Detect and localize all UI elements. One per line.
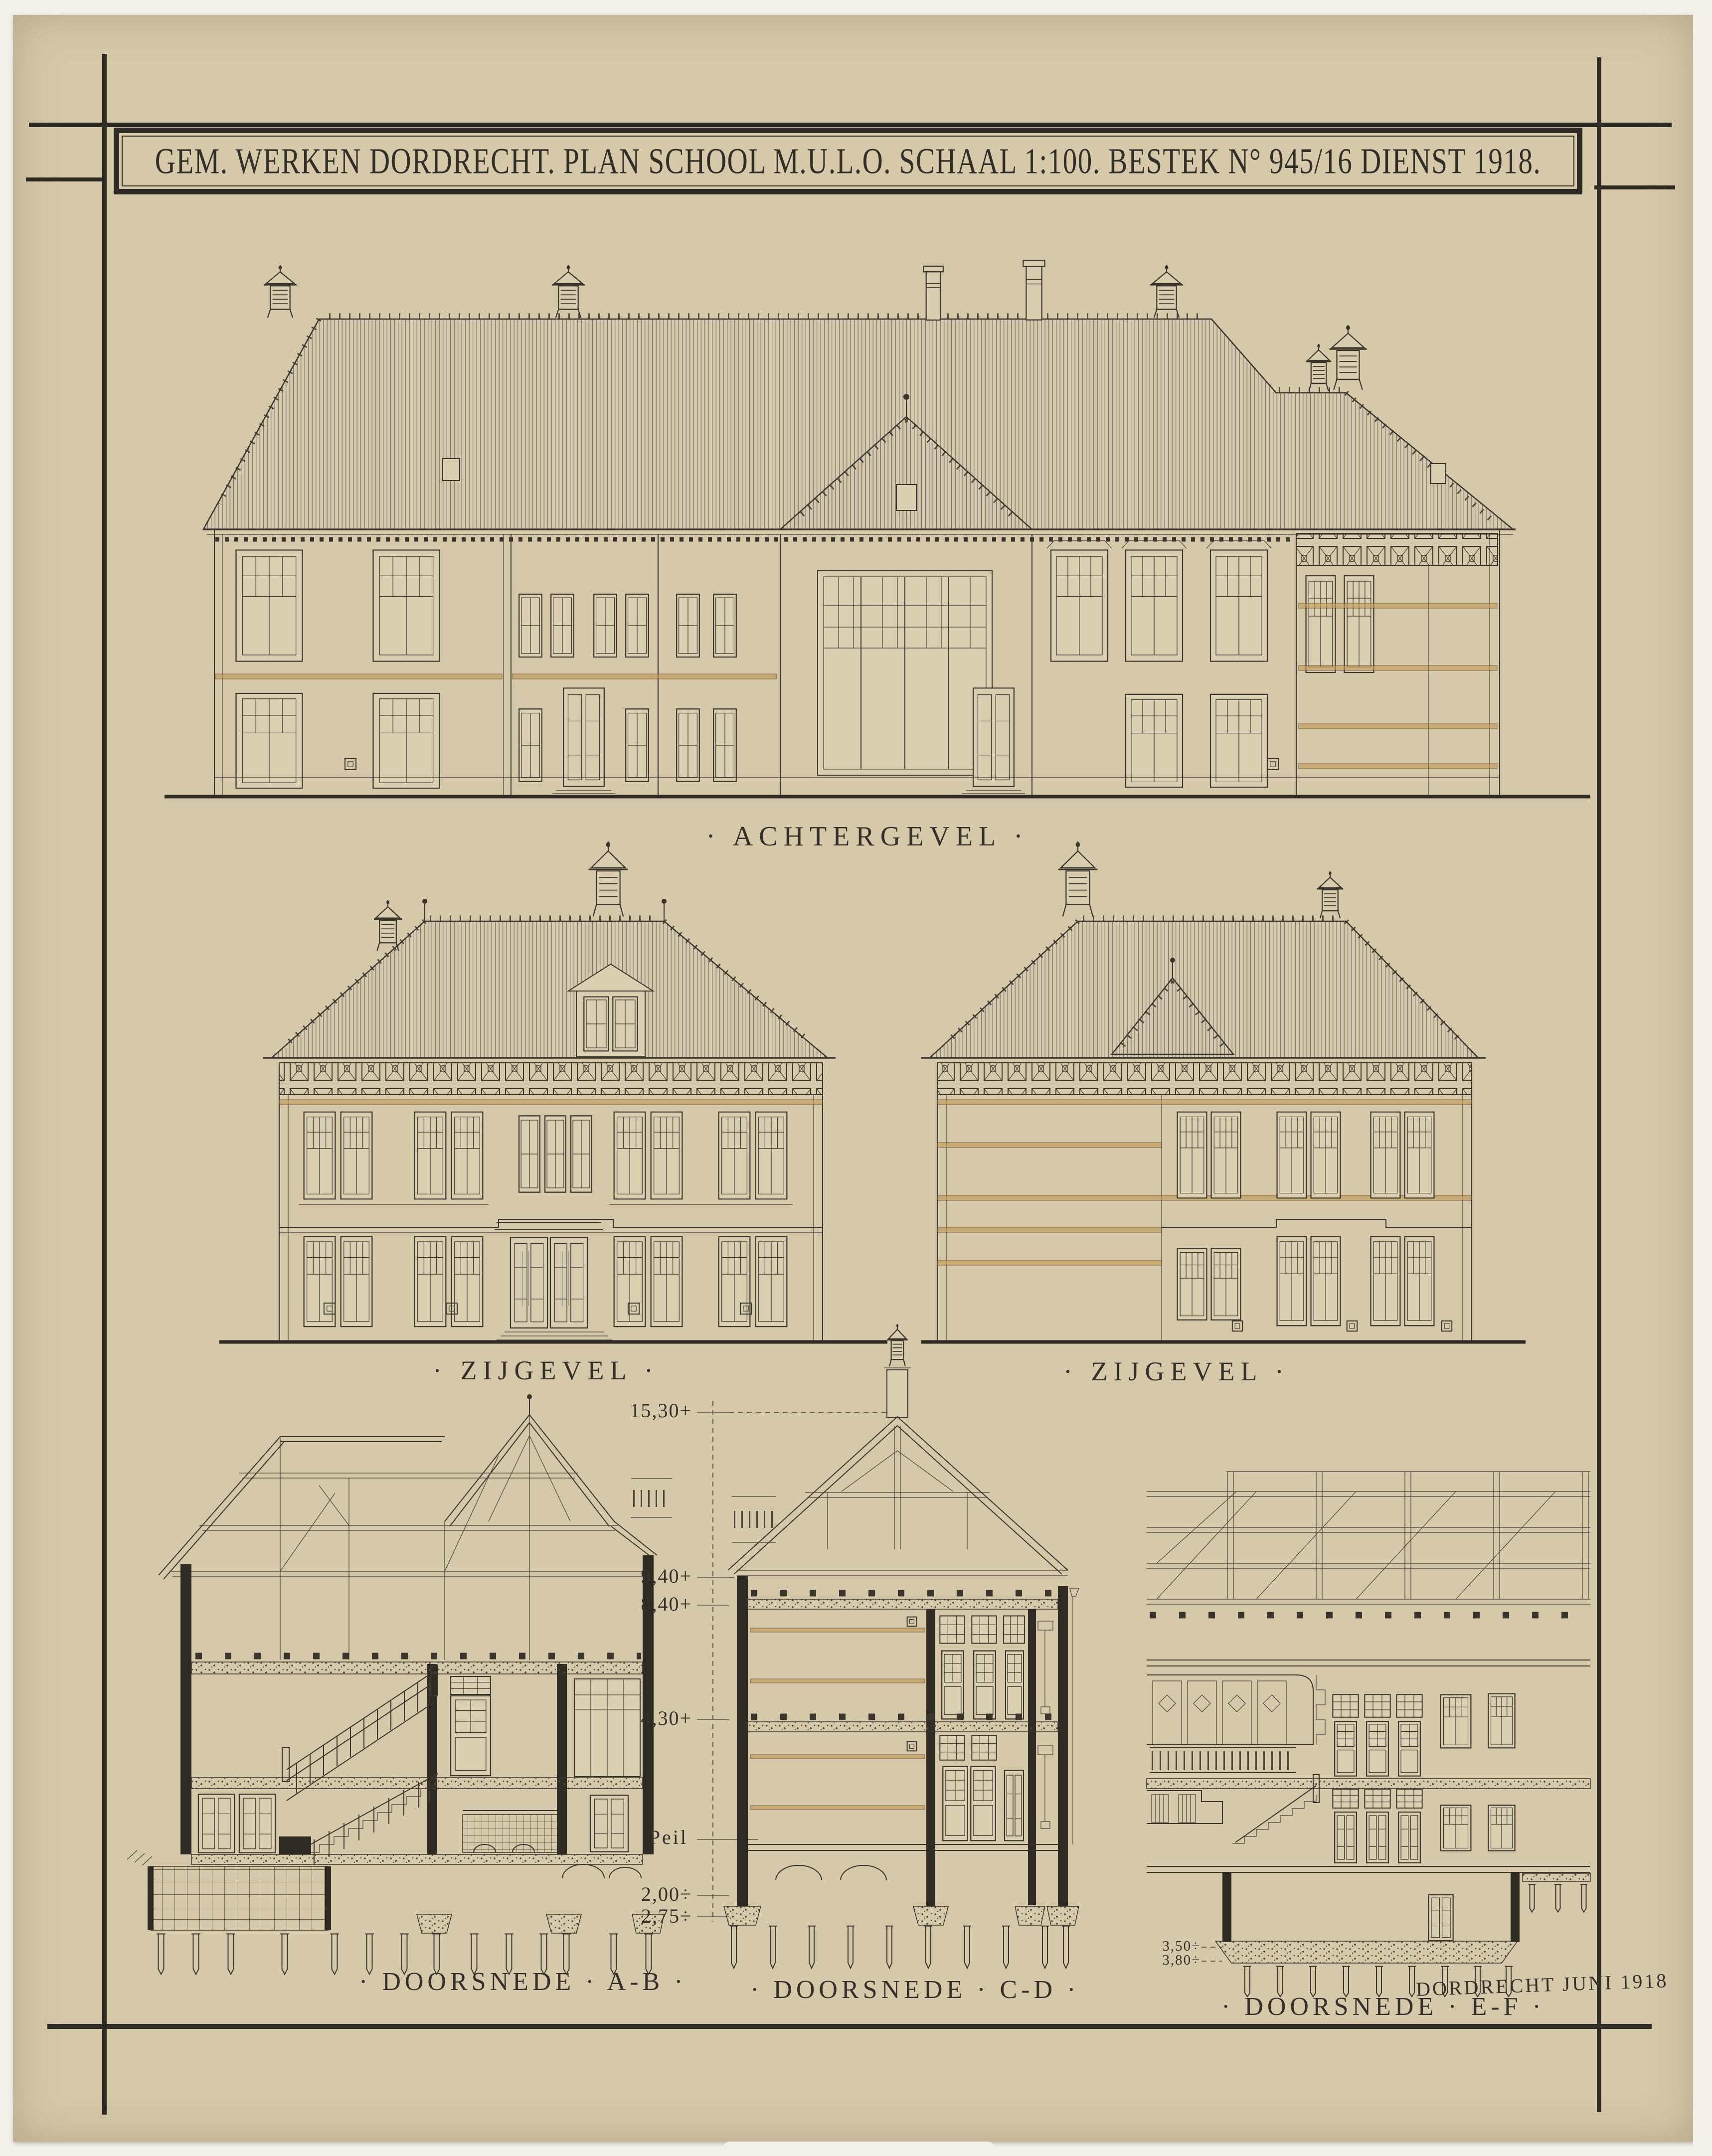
doorsnede-cd-drawing	[724, 1324, 1079, 1968]
label-doorsnede-ab: · DOORSNEDE · A-B ·	[359, 1967, 668, 1996]
label-zijgevel-right: · ZIJGEVEL ·	[1027, 1356, 1326, 1387]
dim-level-200: 2,00÷	[617, 1882, 692, 1906]
doorsnede-ab-drawing	[127, 1394, 672, 1974]
dim-level-peil: Peil	[623, 1825, 688, 1849]
label-zijgevel-left: · ZIJGEVEL ·	[396, 1355, 695, 1386]
label-achtergevel: · ACHTERGEVEL ·	[693, 821, 1042, 852]
paper-edge-bottom-notch	[723, 2142, 995, 2156]
dim-level-1530: 15,30+	[617, 1399, 692, 1422]
achtergevel-drawing	[165, 260, 1590, 797]
dim-level-430: 4,30+	[617, 1706, 692, 1730]
dim-level-275: 2,75÷	[617, 1904, 692, 1928]
zijgevel-left-drawing	[219, 841, 887, 1342]
doorsnede-ef-drawing	[1147, 1472, 1590, 1996]
label-doorsnede-cd: · DOORSNEDE · C-D ·	[750, 1975, 1059, 2004]
paper-edge-right	[1693, 0, 1712, 2156]
drawing-sheet: GEM. WERKEN DORDRECHT. PLAN SCHOOL M.U.L…	[0, 0, 1712, 2156]
sheet-drawing	[0, 0, 1712, 2156]
dim-level-380: 3,80÷	[1151, 1952, 1200, 1969]
dim-level-940: 9,40+	[617, 1564, 692, 1588]
dim-level-840: 8,40+	[617, 1592, 692, 1616]
zijgevel-right-drawing	[921, 841, 1526, 1342]
